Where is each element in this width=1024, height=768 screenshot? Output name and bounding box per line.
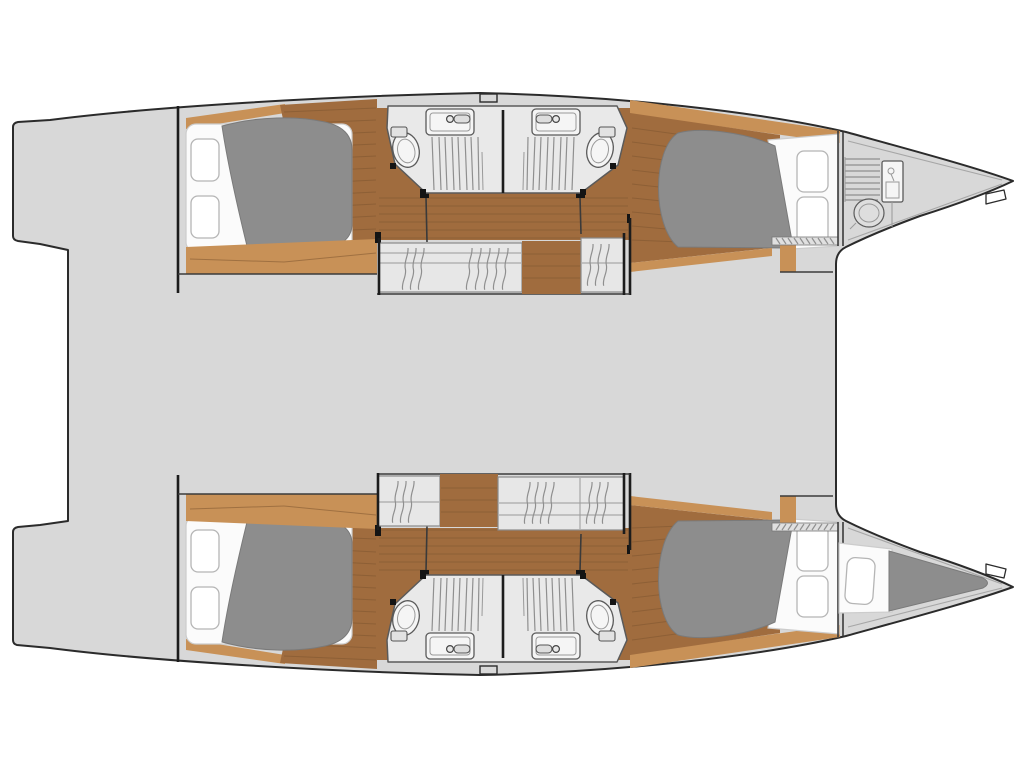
pillow — [191, 139, 219, 181]
bathroom-block — [387, 106, 627, 195]
pillow — [797, 197, 828, 243]
berth-mattress — [659, 131, 793, 248]
pillow — [191, 196, 219, 238]
faucet-icon — [553, 116, 560, 123]
companionway-steps — [378, 473, 440, 530]
toilet-tank — [391, 127, 407, 137]
louvered-locker-strip — [772, 237, 838, 245]
pillow — [797, 151, 828, 192]
aft-cabin — [186, 99, 377, 274]
landing-floor — [440, 474, 498, 527]
faucet-icon — [454, 115, 470, 123]
faucet-icon — [536, 115, 552, 123]
companionway-steps — [498, 473, 624, 534]
toilet-tank — [599, 127, 615, 137]
companionway-steps — [581, 233, 624, 295]
pillow — [844, 557, 875, 605]
faucet-icon — [447, 116, 454, 123]
floorplan-canvas — [0, 0, 1024, 768]
wood-floor — [780, 245, 796, 272]
cleat — [480, 94, 497, 102]
landing-floor — [522, 241, 581, 294]
companionway-steps — [379, 238, 522, 295]
catamaran-floorplan — [0, 0, 1024, 768]
